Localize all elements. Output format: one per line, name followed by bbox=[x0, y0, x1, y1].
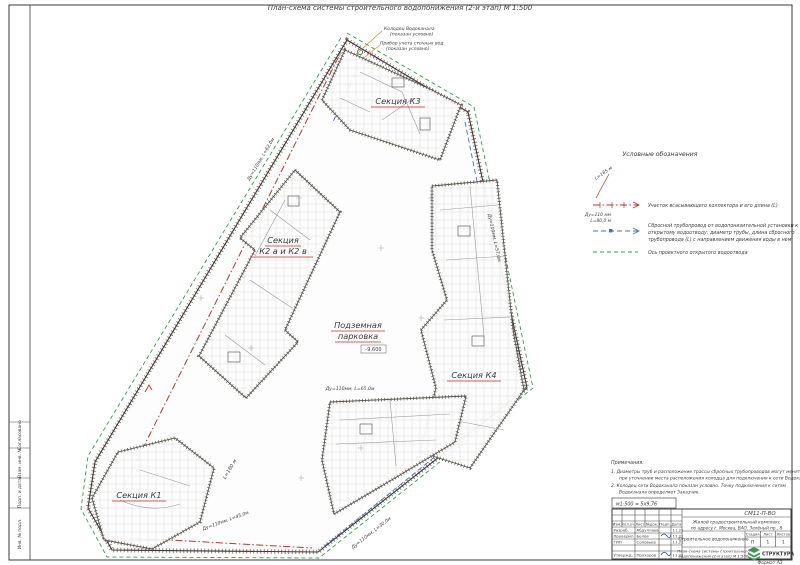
tb-col-koluch: Кол.уч. bbox=[621, 521, 635, 526]
top-callouts: Колодец Водоканала (показан условно) При… bbox=[380, 26, 444, 52]
notes: Примечания: 1. Диаметры труб и расположе… bbox=[611, 460, 800, 496]
pipe-dim: Ду=110мм, L=65,0м bbox=[325, 386, 375, 392]
label-section-k2-line2: К2 а и К2 в bbox=[259, 246, 307, 256]
tb-row-role: ГИП bbox=[614, 540, 622, 545]
legend-item2-annotation2: L=80,0 м bbox=[590, 218, 611, 224]
tb-stage-header: Листов bbox=[777, 532, 790, 536]
company-name: СТРУКТУРА bbox=[762, 552, 794, 558]
note-1-line2: при уточнении места расположения колодца… bbox=[619, 476, 800, 482]
label-section-k4: Секция К4 bbox=[451, 370, 496, 380]
legend-item1-annotation: L=165 м bbox=[594, 165, 614, 182]
tb-sheet-value: 1 bbox=[766, 539, 769, 545]
callout-meter-line2: (показан условно) bbox=[386, 46, 430, 52]
legend-title: Условные обозначения bbox=[622, 150, 697, 158]
tb-row-name: Белов bbox=[637, 534, 650, 539]
strip-label: Согласовано bbox=[17, 420, 23, 450]
tb-row-date: 11.21 bbox=[673, 528, 685, 533]
scale-stamp-text: м1:500 = 5х9,76 bbox=[616, 501, 657, 507]
tb-row-name: Соловьев bbox=[637, 540, 657, 545]
tb-project-line2: по адресу г. Москва, ВАО, Зелёный пр., 8 bbox=[691, 525, 783, 530]
site-plan-svg: Согласовано Взам. инв. № Подп. и дата Ин… bbox=[0, 0, 800, 565]
tb-stage-header: Лист bbox=[763, 532, 772, 536]
legend-item2-label-line1: Сбросной трубопровод от водопонизительно… bbox=[648, 223, 798, 229]
tb-col-list: Лист bbox=[635, 521, 645, 526]
tb-drawing-title-line2: водопонижения (2-й этап) М 1:500 bbox=[679, 553, 749, 558]
tb-document-code: СМ11-П-ВО bbox=[744, 511, 776, 517]
legend: Условные обозначения L=165 м Участок вса… bbox=[584, 150, 798, 256]
legend-item2-annotation1: Ду=110 мм bbox=[584, 212, 612, 218]
legend-item3-label: Ось проектного открытого водоотвода bbox=[648, 250, 748, 256]
legend-item1-label: Участок всасывающего коллектора и его дл… bbox=[648, 203, 778, 209]
strip-label: Подп. и дата bbox=[17, 478, 23, 508]
tb-col-data: Дата bbox=[672, 521, 682, 526]
strip-label: Инв. № подл. bbox=[17, 519, 23, 549]
label-section-k2-line1: Секция bbox=[267, 235, 299, 245]
notes-title: Примечания: bbox=[611, 460, 644, 466]
drawing-sheet: Согласовано Взам. инв. № Подп. и дата Ин… bbox=[0, 0, 800, 565]
callout-meter-line1: Прибор учета сточных вод bbox=[380, 41, 444, 47]
tb-stage-value: П bbox=[751, 539, 754, 545]
format-label: Формат А3 bbox=[757, 560, 782, 565]
note-2-line1: 2. Колодец сети Водоканала показан услов… bbox=[611, 483, 787, 489]
label-parking-line1: Подземная bbox=[334, 320, 382, 330]
tb-doc-type: Строительное водопонижение bbox=[678, 537, 748, 543]
label-parking-line2: парковка bbox=[338, 331, 378, 341]
elevation-mark: -9,600 bbox=[361, 345, 386, 353]
elevation-value: -9,600 bbox=[365, 347, 381, 353]
tb-stage-header: Стадия bbox=[746, 532, 760, 536]
tb-row-role: Разраб. bbox=[614, 528, 629, 533]
label-section-k1: Секция К1 bbox=[116, 490, 161, 500]
legend-item2-label-line2: открытому водоотводу: диаметр трубы, дли… bbox=[648, 230, 795, 236]
tb-col-ndok: №док. bbox=[646, 521, 658, 526]
tb-row-role: Утвержд. bbox=[614, 552, 633, 557]
callout-well-line1: Колодец Водоканала bbox=[384, 26, 435, 32]
note-2-line2: Водоканала определяет Заказчик. bbox=[619, 490, 700, 496]
tb-row-name: Прохоров bbox=[637, 552, 657, 557]
sheet-title: План-схема системы строительного водопон… bbox=[268, 4, 533, 12]
scale-stamp: м1:500 = 5х9,76 bbox=[612, 498, 676, 508]
label-section-k3: Секция К3 bbox=[375, 96, 420, 106]
tb-row-role: Проверил bbox=[614, 534, 634, 539]
note-1-line1: 1. Диаметры труб и расположение трассы с… bbox=[611, 469, 800, 475]
tb-col-podp: Подп. bbox=[659, 521, 671, 526]
title-block: Изм. Кол.уч. Лист №док. Подп. Дата Разра… bbox=[612, 509, 794, 561]
legend-item2-label-line3: трубопровода (L) с направлением движения… bbox=[648, 237, 792, 243]
tb-row-name: Абдуллаев bbox=[637, 528, 660, 533]
tb-col-izm: Изм. bbox=[613, 521, 622, 526]
tb-sheets-value: 1 bbox=[782, 539, 785, 545]
callout-well-line2: (показан условно) bbox=[390, 32, 434, 38]
left-stamp-strip: Согласовано Взам. инв. № Подп. и дата Ин… bbox=[17, 420, 23, 549]
strip-label: Взам. инв. № bbox=[17, 448, 23, 478]
